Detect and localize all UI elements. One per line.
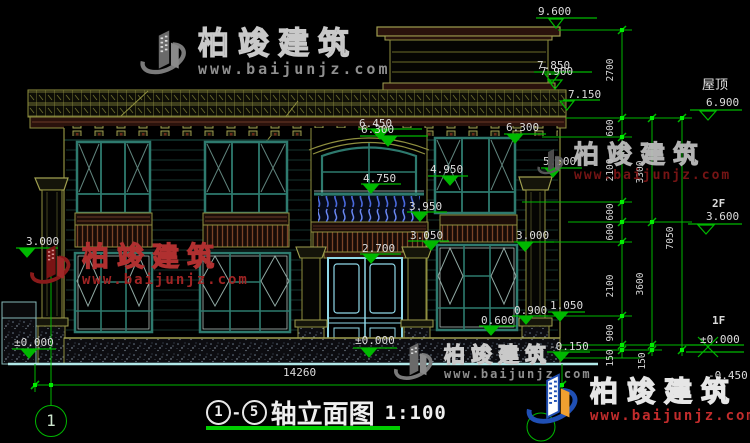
level-label-3000-left: 3.000 xyxy=(26,236,59,247)
level-label-1050: 1.050 xyxy=(550,300,583,311)
level-label-m0150: -0.150 xyxy=(549,341,589,352)
level-label-3000-right: 3.000 xyxy=(516,230,549,241)
title-underline xyxy=(206,426,400,430)
svg-text:600: 600 xyxy=(605,203,616,220)
svg-text:600: 600 xyxy=(605,223,616,240)
stair-tower xyxy=(377,27,560,95)
level-label-0-door: ±0.000 xyxy=(355,335,395,346)
level-label-7150: 7.150 xyxy=(568,89,601,100)
level-label-0-left: ±0.000 xyxy=(14,337,54,348)
svg-text:150: 150 xyxy=(605,349,616,366)
floor-level-ground: -0.450 xyxy=(708,370,748,381)
spandrel-left xyxy=(75,213,152,247)
svg-text:2100: 2100 xyxy=(605,274,616,297)
svg-text:2100: 2100 xyxy=(605,158,616,181)
floor-label-2f: 2F xyxy=(712,198,725,209)
spandrel-right xyxy=(440,215,517,242)
chain-dim-texts: 2700 600 2100 600 600 2100 900 150 3300 … xyxy=(605,58,676,369)
title-axis-to: 5 xyxy=(242,400,267,425)
level-label-3950: 3.950 xyxy=(409,201,442,212)
title-scale: 1:100 xyxy=(385,402,447,424)
svg-text:2700: 2700 xyxy=(605,58,616,81)
floor-label-roof: 屋顶 xyxy=(702,79,728,92)
level-label-3050: 3.050 xyxy=(410,230,443,241)
svg-text:900: 900 xyxy=(605,324,616,341)
level-label-9600: 9.600 xyxy=(538,6,571,17)
svg-text:600: 600 xyxy=(605,119,616,136)
floor-level-roof: 6.900 xyxy=(706,97,739,108)
level-label-2700: 2.700 xyxy=(362,243,395,254)
level-label-4950: 4.950 xyxy=(430,164,463,175)
elevation-drawing: 2700 600 2100 600 600 2100 900 150 3300 … xyxy=(0,0,750,443)
level-label-6300-center: 6.300 xyxy=(361,124,394,135)
floor-level-2f: 3.600 xyxy=(706,211,739,222)
floor-label-1f: 1F xyxy=(712,315,725,326)
svg-text:7050: 7050 xyxy=(665,226,676,249)
svg-text:3300: 3300 xyxy=(635,160,646,183)
level-label-0900: 0.900 xyxy=(514,305,547,316)
level-label-0600: 0.600 xyxy=(481,315,514,326)
title-axis-separator: - xyxy=(233,403,240,422)
window-2f-left xyxy=(77,142,150,213)
cad-elevation-screenshot: 2700 600 2100 600 600 2100 900 150 3300 … xyxy=(0,0,750,443)
spandrel-mid xyxy=(203,213,289,247)
svg-text:3600: 3600 xyxy=(635,272,646,295)
title-axis-from: 1 xyxy=(206,400,231,425)
level-label-4750: 4.750 xyxy=(363,173,396,184)
floor-level-1f: ±0.000 xyxy=(700,334,740,345)
level-label-6300-right: 6.300 xyxy=(506,122,539,133)
total-width-dim: 14260 xyxy=(283,367,316,378)
window-1f-left xyxy=(75,253,152,332)
window-1f-mid xyxy=(200,253,290,332)
level-label-5300: 5.300 xyxy=(543,156,576,167)
window-2f-mid xyxy=(205,142,287,213)
axis-bubble-1: 1 xyxy=(35,405,67,437)
svg-text:150: 150 xyxy=(637,352,648,369)
level-label-7900: 7.900 xyxy=(540,66,573,77)
plinth xyxy=(64,338,560,364)
